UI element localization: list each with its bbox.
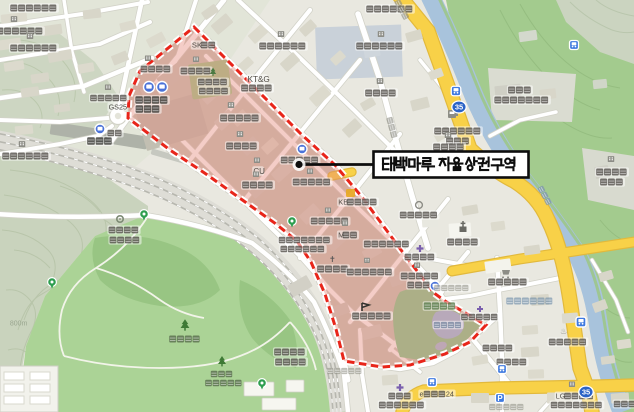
svg-text:800m: 800m [10, 321, 28, 328]
svg-text:SK: SK [192, 41, 202, 50]
svg-text:GS25: GS25 [109, 103, 127, 112]
svg-text:35: 35 [582, 388, 590, 397]
svg-text:✝: ✝ [329, 255, 336, 264]
svg-text:35: 35 [455, 103, 463, 112]
svg-text:24: 24 [446, 390, 454, 399]
svg-text:e: e [420, 390, 424, 399]
svg-text:KT&G: KT&G [248, 75, 270, 84]
svg-text:P: P [497, 394, 503, 403]
svg-text:KB: KB [338, 198, 348, 207]
svg-text:♨: ♨ [560, 327, 567, 336]
